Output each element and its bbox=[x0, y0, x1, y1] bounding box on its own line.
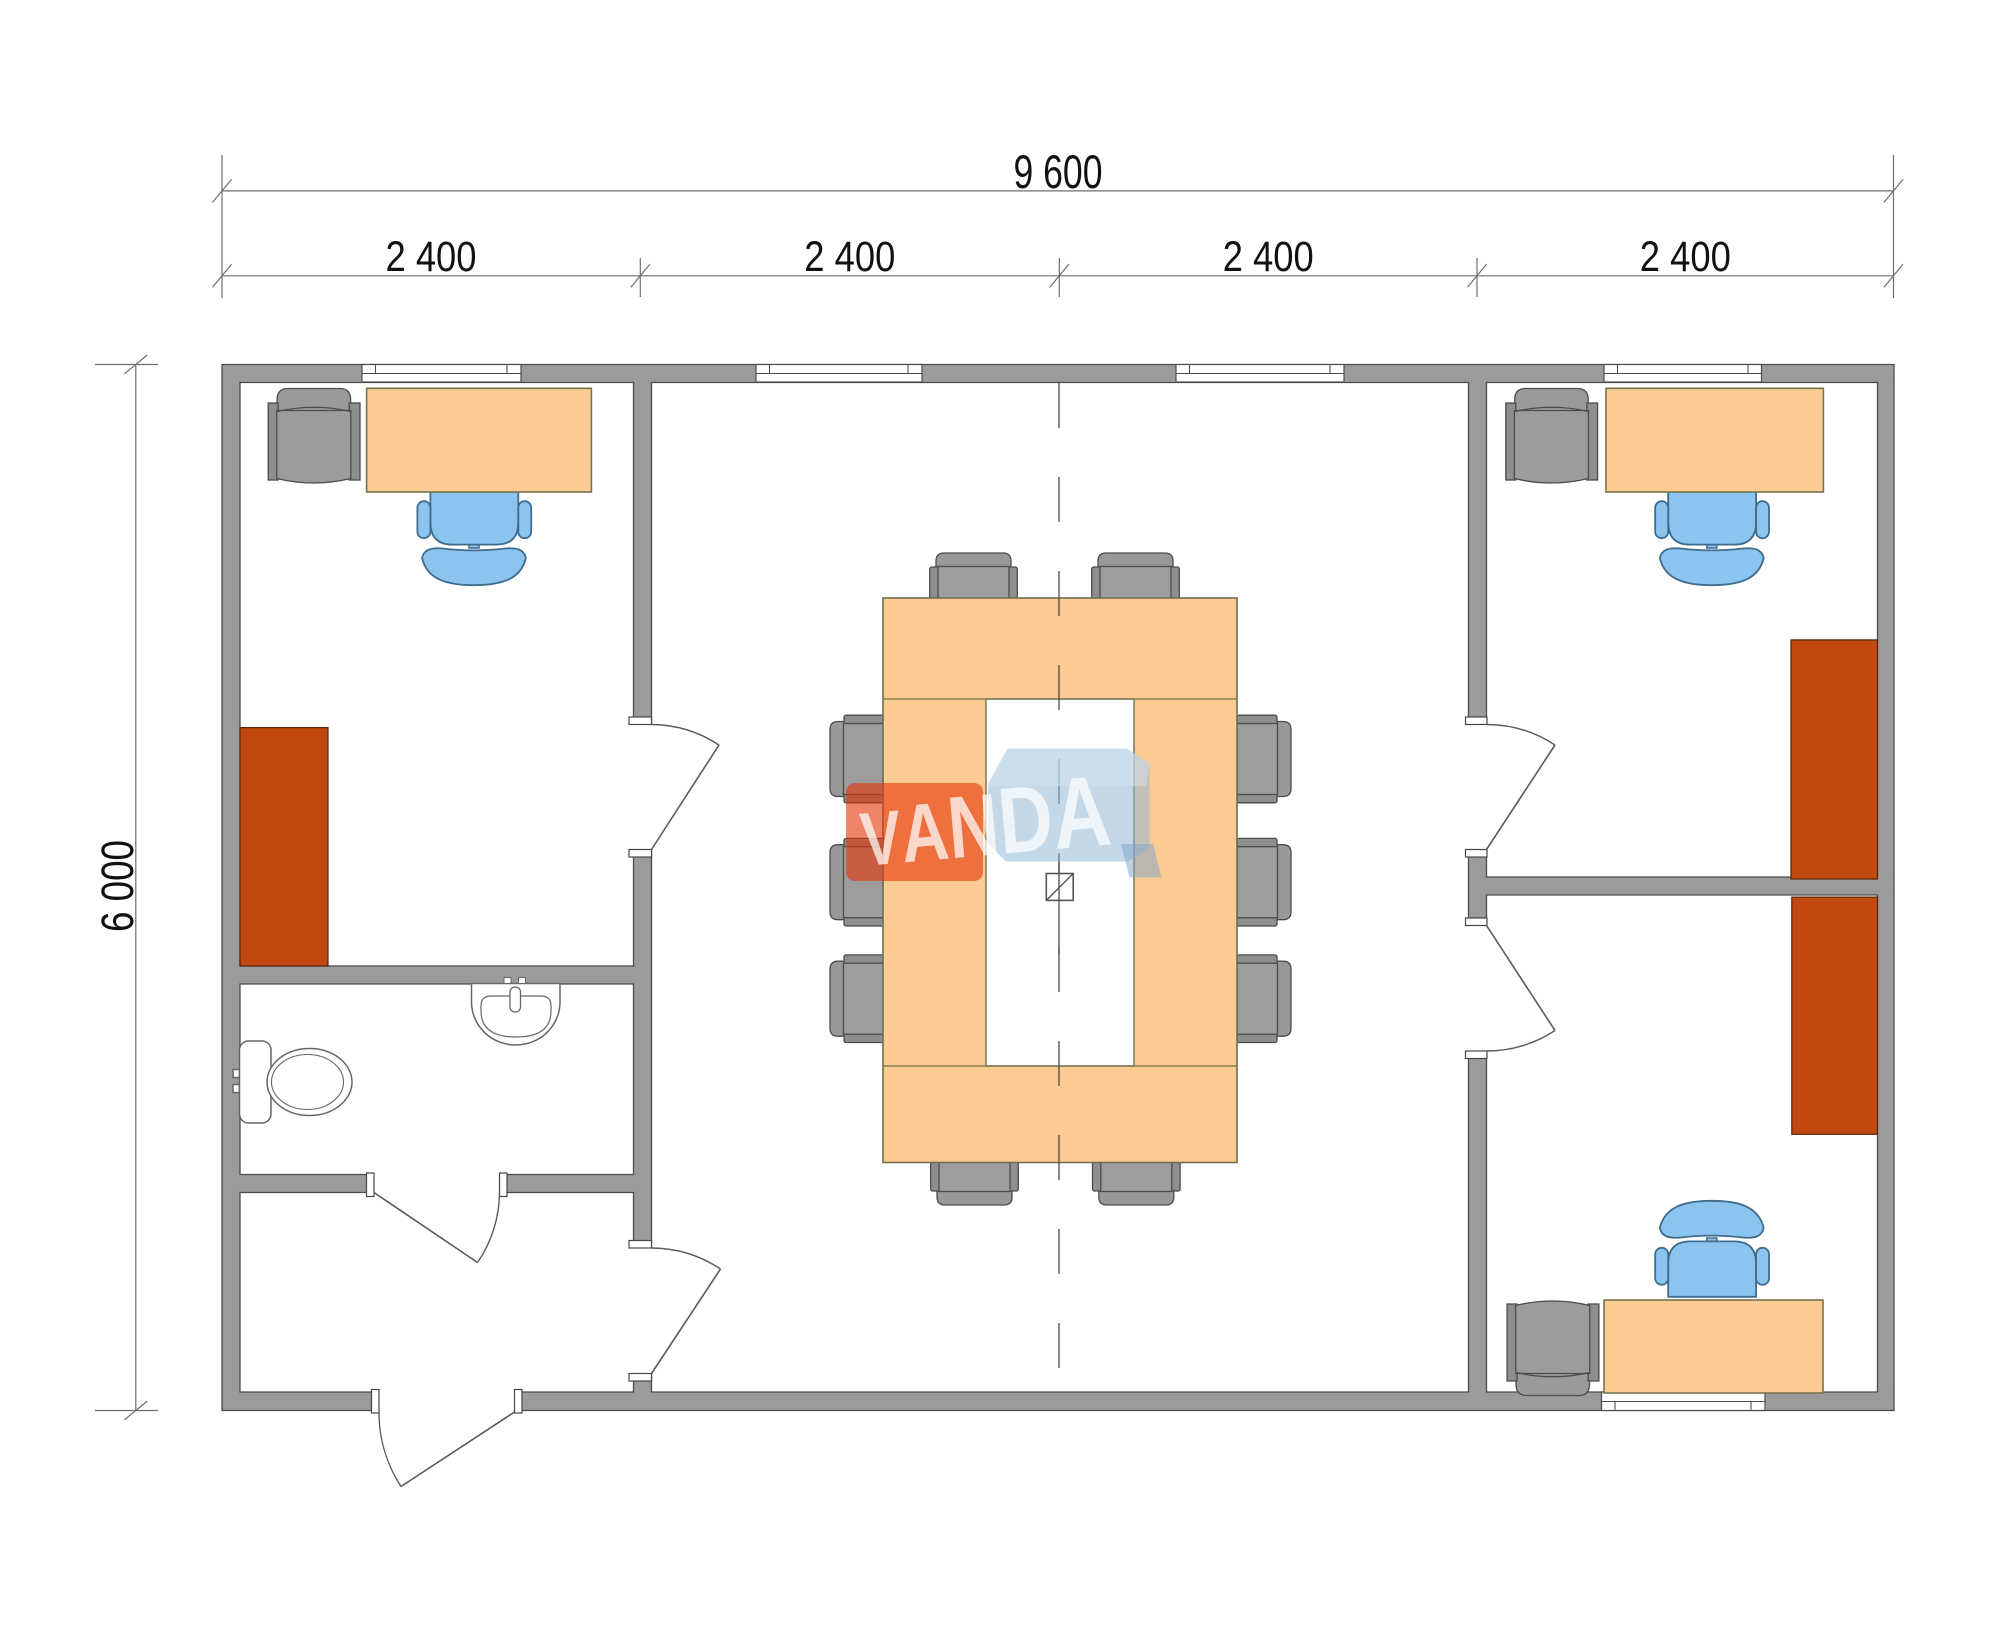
svg-text:6 000: 6 000 bbox=[92, 840, 143, 932]
svg-text:2 400: 2 400 bbox=[386, 233, 477, 281]
svg-text:9 600: 9 600 bbox=[1014, 145, 1103, 198]
svg-text:2 400: 2 400 bbox=[1640, 233, 1731, 281]
svg-text:2 400: 2 400 bbox=[804, 233, 895, 281]
svg-text:2 400: 2 400 bbox=[1223, 233, 1314, 281]
